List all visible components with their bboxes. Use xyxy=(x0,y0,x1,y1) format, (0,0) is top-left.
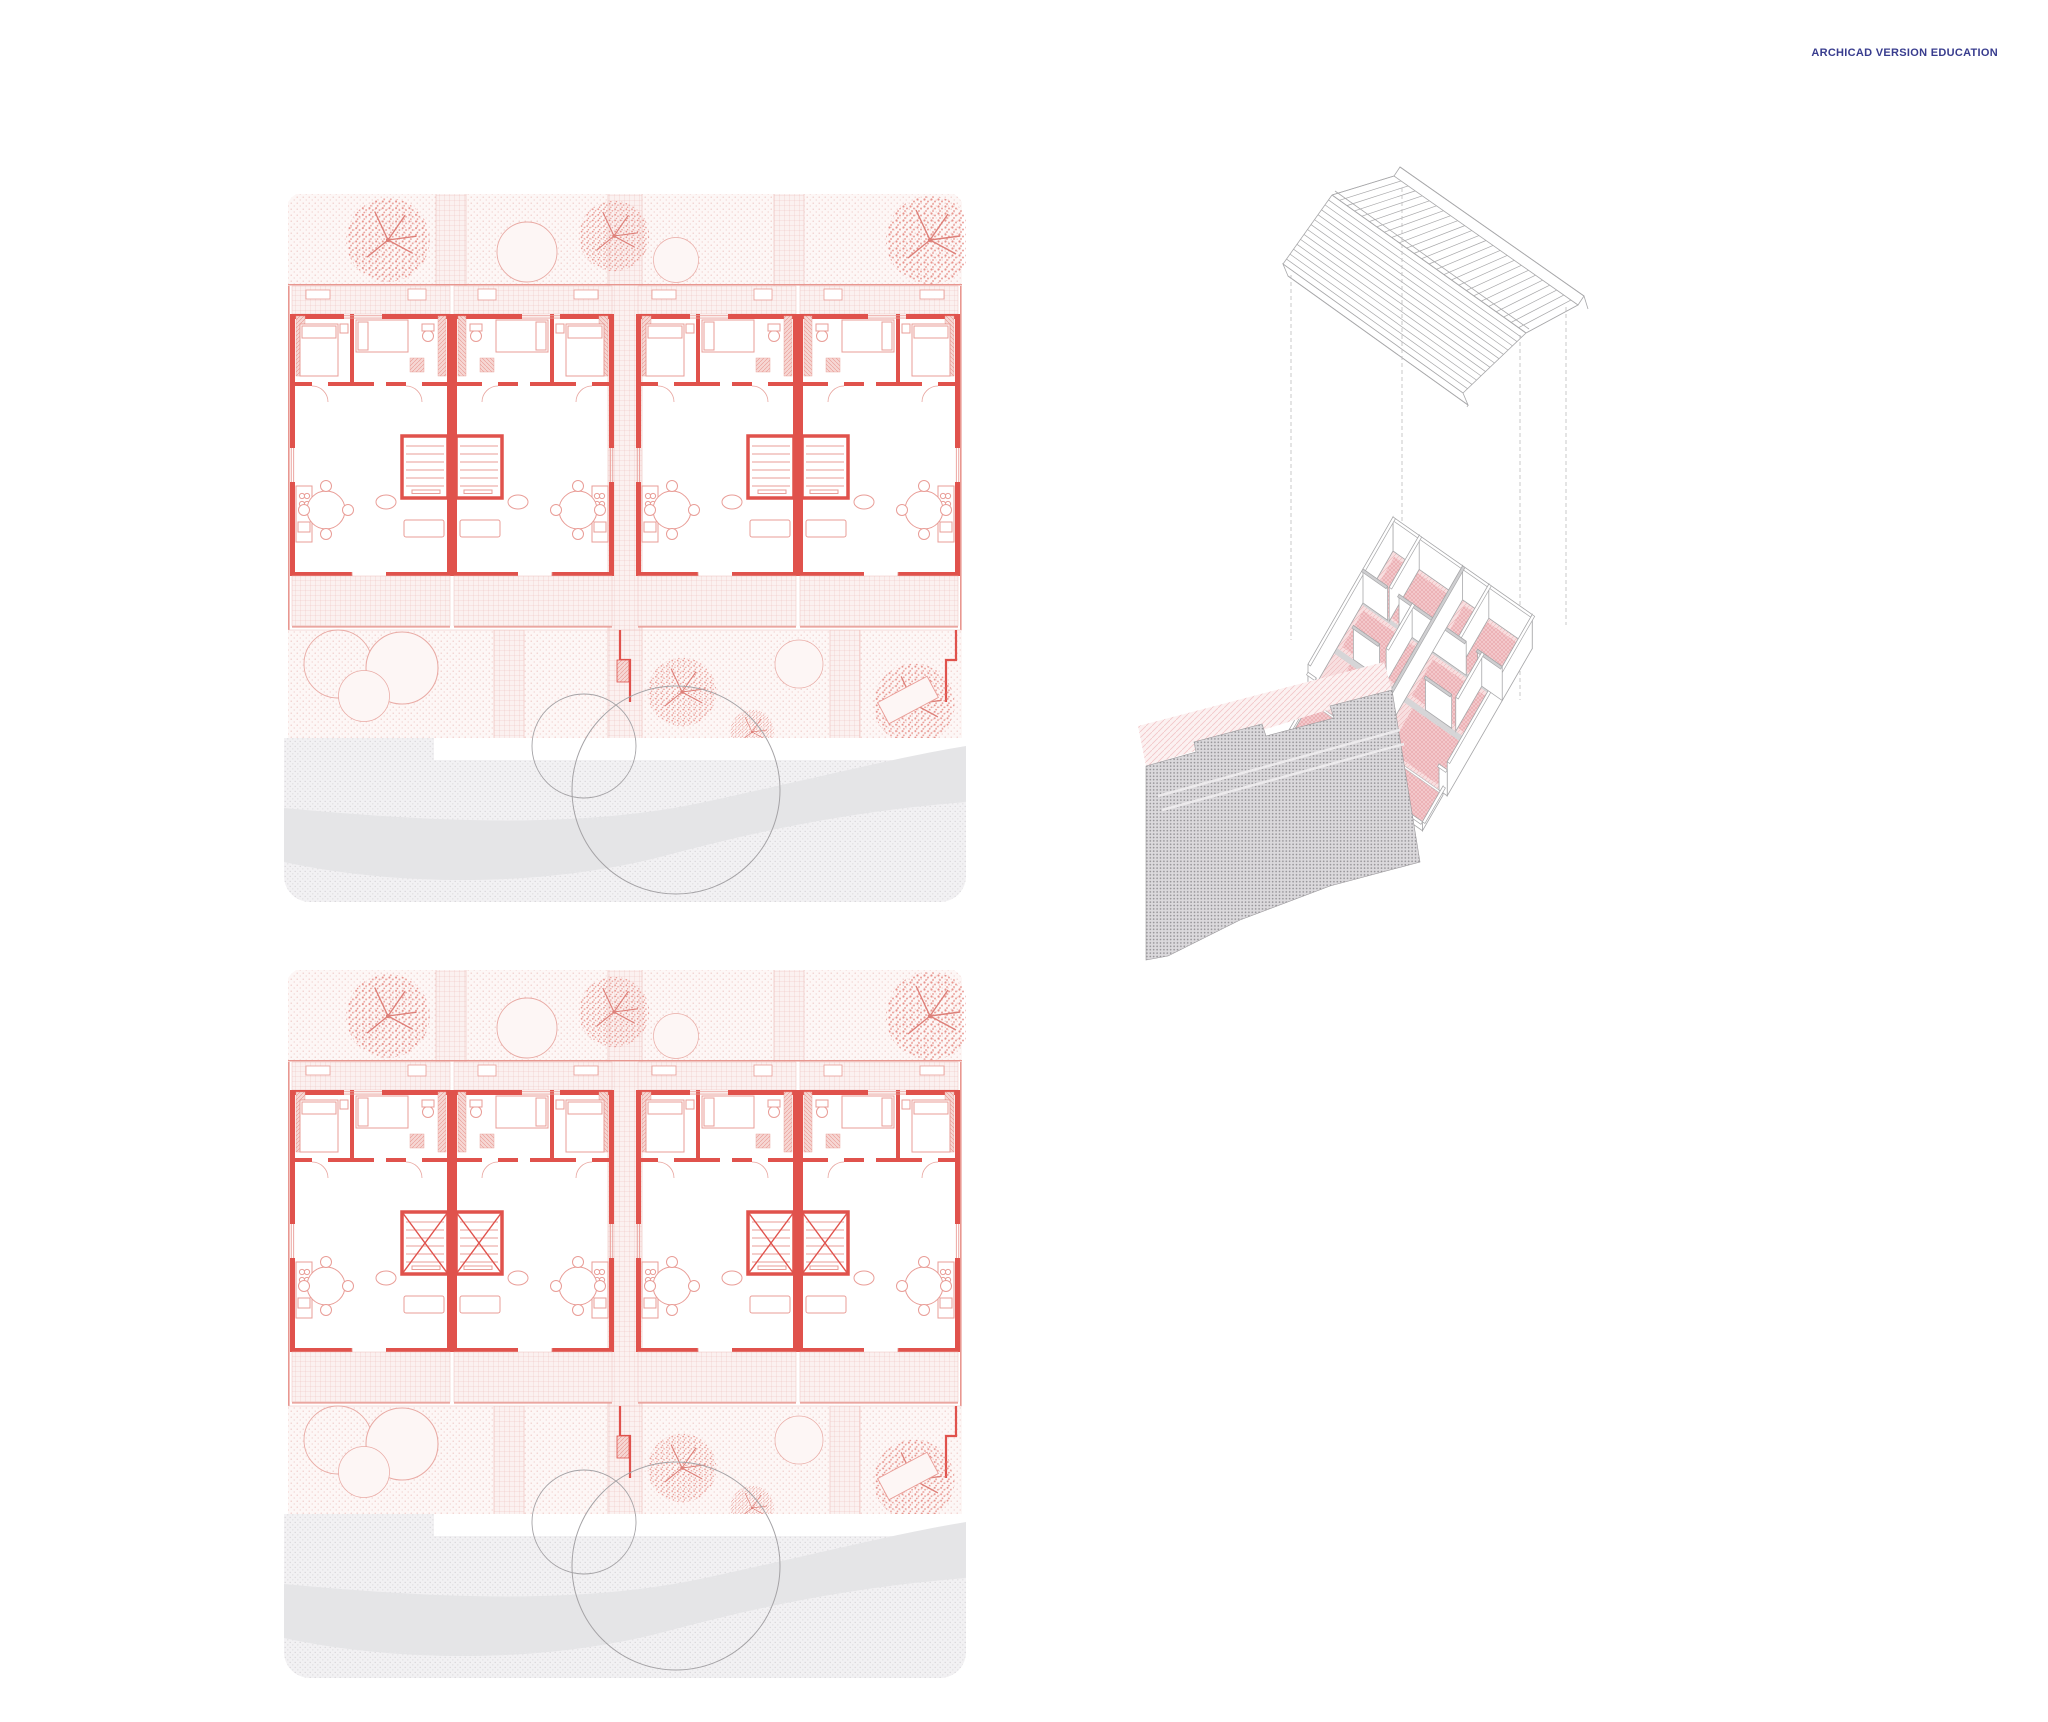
education-watermark: ARCHICAD VERSION EDUCATION xyxy=(1811,47,1998,59)
floor-plan-upper[interactable] xyxy=(284,190,974,902)
archicad-canvas: ARCHICAD VERSION EDUCATION xyxy=(0,0,2048,1722)
drawing-sheet xyxy=(0,0,2048,1722)
floor-plan-lower[interactable] xyxy=(284,966,974,1678)
axonometric-view[interactable] xyxy=(1138,167,1588,960)
